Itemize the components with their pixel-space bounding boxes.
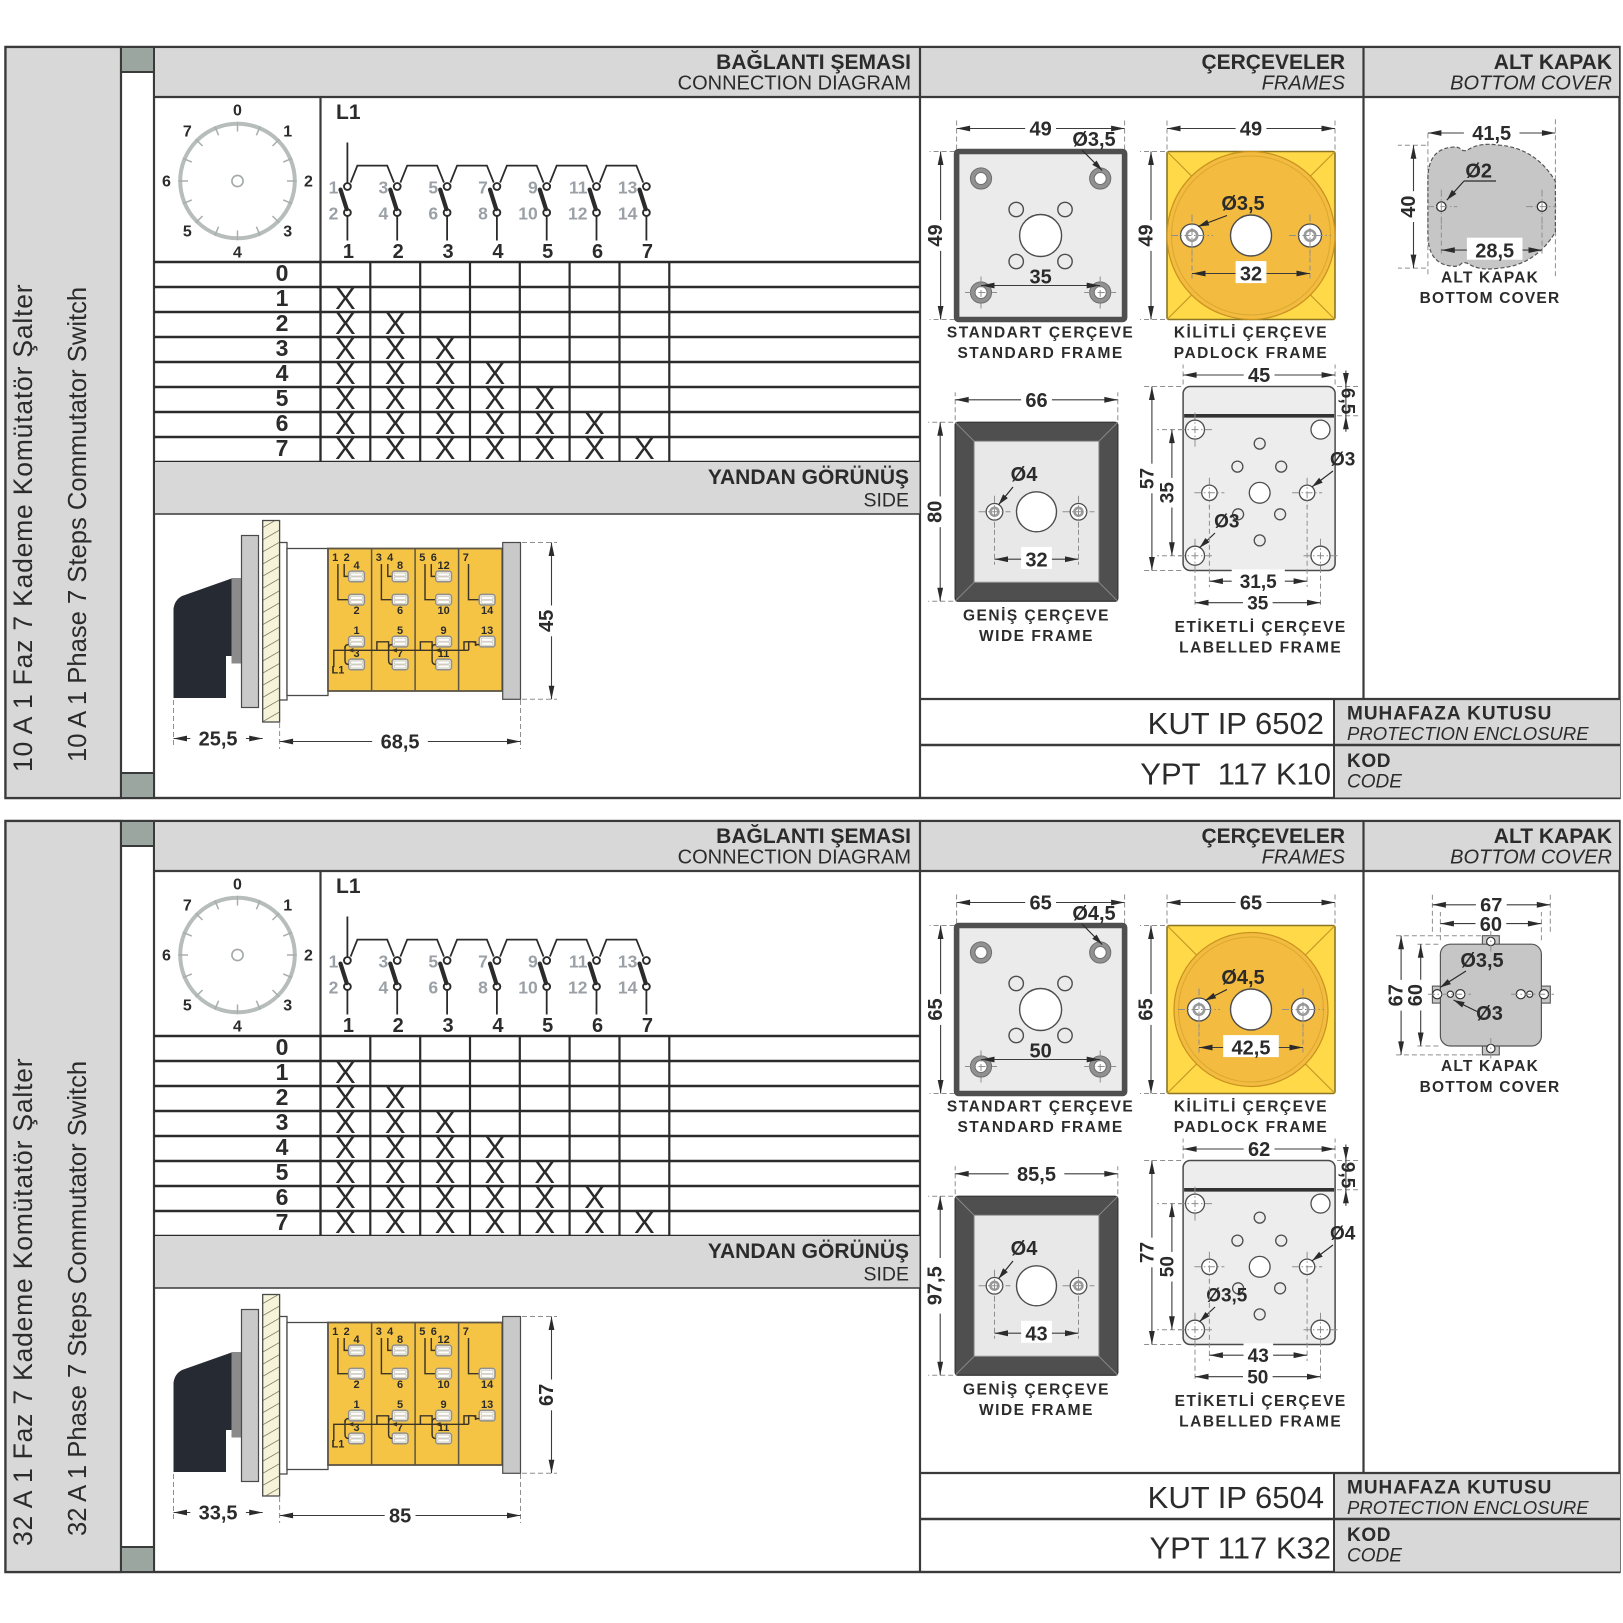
svg-text:0: 0 bbox=[233, 877, 242, 894]
svg-text:Ø3,5: Ø3,5 bbox=[1206, 1286, 1248, 1307]
svg-text:YPT 117 K32: YPT 117 K32 bbox=[1149, 1531, 1331, 1566]
svg-text:ALT KAPAK: ALT KAPAK bbox=[1494, 825, 1612, 848]
svg-text:5: 5 bbox=[183, 998, 192, 1015]
svg-text:4: 4 bbox=[233, 1019, 242, 1036]
svg-text:9: 9 bbox=[528, 952, 538, 972]
svg-text:0: 0 bbox=[233, 103, 242, 120]
svg-text:Ø3: Ø3 bbox=[1330, 450, 1355, 471]
svg-text:14: 14 bbox=[618, 978, 638, 998]
svg-text:28,5: 28,5 bbox=[1475, 240, 1514, 262]
svg-text:KİLİTLİ ÇERÇEVE: KİLİTLİ ÇERÇEVE bbox=[1174, 325, 1328, 342]
svg-text:3: 3 bbox=[378, 178, 388, 198]
svg-text:Ø4: Ø4 bbox=[1011, 464, 1039, 486]
svg-text:LABELLED FRAME: LABELLED FRAME bbox=[1179, 1414, 1342, 1431]
svg-text:PADLOCK FRAME: PADLOCK FRAME bbox=[1174, 1119, 1328, 1136]
svg-text:3: 3 bbox=[283, 998, 292, 1015]
svg-text:5: 5 bbox=[397, 1399, 403, 1411]
svg-text:3: 3 bbox=[376, 1326, 382, 1338]
svg-text:2: 2 bbox=[329, 204, 339, 224]
svg-text:LABELLED FRAME: LABELLED FRAME bbox=[1179, 640, 1342, 657]
svg-text:60: 60 bbox=[1405, 984, 1427, 1006]
svg-text:WIDE FRAME: WIDE FRAME bbox=[979, 628, 1094, 645]
svg-text:4: 4 bbox=[276, 360, 289, 386]
svg-text:FRAMES: FRAMES bbox=[1262, 73, 1346, 95]
svg-text:7: 7 bbox=[276, 435, 289, 461]
svg-text:SIDE: SIDE bbox=[863, 490, 909, 512]
svg-text:GENİŞ ÇERÇEVE: GENİŞ ÇERÇEVE bbox=[963, 1382, 1110, 1399]
svg-text:7: 7 bbox=[276, 1209, 289, 1235]
svg-text:X: X bbox=[634, 1205, 655, 1240]
svg-text:X: X bbox=[584, 1205, 605, 1240]
svg-text:SIDE: SIDE bbox=[863, 1264, 909, 1286]
svg-text:50: 50 bbox=[1247, 1368, 1268, 1389]
svg-text:8: 8 bbox=[397, 1334, 403, 1346]
svg-text:X: X bbox=[584, 431, 605, 466]
svg-text:67: 67 bbox=[536, 1384, 558, 1406]
svg-text:6: 6 bbox=[431, 552, 437, 564]
svg-text:4: 4 bbox=[233, 245, 242, 262]
svg-text:49: 49 bbox=[1240, 119, 1262, 141]
svg-text:10: 10 bbox=[518, 978, 538, 998]
svg-text:L1: L1 bbox=[336, 875, 361, 898]
svg-text:WIDE FRAME: WIDE FRAME bbox=[979, 1402, 1094, 1419]
svg-text:MUHAFAZA KUTUSU: MUHAFAZA KUTUSU bbox=[1347, 1478, 1552, 1499]
svg-text:BAĞLANTI ŞEMASI: BAĞLANTI ŞEMASI bbox=[716, 824, 911, 848]
svg-text:3: 3 bbox=[376, 552, 382, 564]
svg-text:4: 4 bbox=[387, 1326, 394, 1338]
svg-text:6: 6 bbox=[431, 1326, 437, 1338]
svg-text:Ø4: Ø4 bbox=[1011, 1238, 1039, 1260]
svg-text:45: 45 bbox=[1248, 365, 1270, 387]
svg-text:8: 8 bbox=[478, 204, 488, 224]
svg-text:35: 35 bbox=[1157, 482, 1178, 504]
svg-text:7: 7 bbox=[463, 552, 469, 564]
svg-text:2: 2 bbox=[344, 1326, 350, 1338]
svg-text:68,5: 68,5 bbox=[381, 732, 420, 754]
svg-text:CODE: CODE bbox=[1347, 772, 1402, 793]
svg-text:49: 49 bbox=[1029, 119, 1051, 141]
svg-text:40: 40 bbox=[1398, 196, 1420, 218]
svg-text:8: 8 bbox=[478, 978, 488, 998]
svg-text:66: 66 bbox=[1025, 390, 1047, 412]
svg-text:6,5: 6,5 bbox=[1337, 388, 1358, 415]
svg-text:BOTTOM COVER: BOTTOM COVER bbox=[1450, 73, 1612, 95]
svg-text:43: 43 bbox=[1025, 1324, 1047, 1346]
svg-text:2: 2 bbox=[344, 552, 350, 564]
svg-text:BOTTOM COVER: BOTTOM COVER bbox=[1450, 847, 1612, 869]
svg-text:1: 1 bbox=[343, 1015, 354, 1037]
svg-text:6: 6 bbox=[276, 1184, 289, 1210]
svg-text:Ø3,5: Ø3,5 bbox=[1221, 193, 1264, 215]
svg-text:10 A 1 Faz 7 Kademe Komütatör: 10 A 1 Faz 7 Kademe Komütatör Şalter bbox=[8, 284, 38, 772]
svg-text:2: 2 bbox=[329, 978, 339, 998]
svg-text:FRAMES: FRAMES bbox=[1262, 847, 1346, 869]
svg-text:KİLİTLİ ÇERÇEVE: KİLİTLİ ÇERÇEVE bbox=[1174, 1099, 1328, 1116]
svg-text:ETİKETLİ ÇERÇEVE: ETİKETLİ ÇERÇEVE bbox=[1175, 1393, 1347, 1410]
svg-text:Ø3: Ø3 bbox=[1476, 1003, 1503, 1025]
svg-text:GENİŞ ÇERÇEVE: GENİŞ ÇERÇEVE bbox=[963, 608, 1110, 625]
svg-text:5: 5 bbox=[183, 224, 192, 241]
svg-text:4: 4 bbox=[378, 978, 388, 998]
svg-text:50: 50 bbox=[1157, 1256, 1178, 1277]
svg-text:80: 80 bbox=[925, 501, 947, 523]
svg-text:KUT IP 6504: KUT IP 6504 bbox=[1148, 1480, 1324, 1515]
svg-text:PADLOCK FRAME: PADLOCK FRAME bbox=[1174, 345, 1328, 362]
svg-text:0: 0 bbox=[276, 1034, 289, 1060]
svg-text:35: 35 bbox=[1029, 267, 1051, 289]
svg-text:2: 2 bbox=[353, 1379, 359, 1391]
svg-text:8: 8 bbox=[397, 560, 403, 572]
svg-text:3: 3 bbox=[378, 952, 388, 972]
svg-text:1: 1 bbox=[332, 552, 338, 564]
svg-text:2: 2 bbox=[276, 1084, 289, 1110]
svg-text:32 A 1 Faz 7 Kademe Komütatör: 32 A 1 Faz 7 Kademe Komütatör Şalter bbox=[8, 1058, 38, 1546]
svg-text:45: 45 bbox=[536, 610, 558, 632]
svg-text:14: 14 bbox=[481, 1379, 494, 1391]
svg-text:STANDARD FRAME: STANDARD FRAME bbox=[957, 1119, 1123, 1136]
svg-text:7: 7 bbox=[642, 1015, 653, 1037]
svg-text:14: 14 bbox=[618, 204, 638, 224]
svg-text:STANDART ÇERÇEVE: STANDART ÇERÇEVE bbox=[947, 1099, 1134, 1116]
svg-text:9: 9 bbox=[528, 178, 538, 198]
svg-text:3: 3 bbox=[443, 241, 454, 263]
svg-text:X: X bbox=[485, 431, 506, 466]
svg-text:1: 1 bbox=[283, 897, 292, 914]
svg-text:35: 35 bbox=[1247, 594, 1269, 615]
svg-text:32: 32 bbox=[1240, 264, 1262, 286]
svg-text:57: 57 bbox=[1137, 468, 1158, 489]
svg-text:6: 6 bbox=[276, 410, 289, 436]
svg-text:32 A 1 Phase 7 Steps Commutato: 32 A 1 Phase 7 Steps Commutator Switch bbox=[64, 1061, 92, 1536]
svg-text:11: 11 bbox=[569, 952, 588, 972]
svg-text:85: 85 bbox=[389, 1506, 411, 1528]
svg-text:13: 13 bbox=[481, 625, 493, 637]
svg-text:62: 62 bbox=[1248, 1139, 1270, 1161]
svg-text:4: 4 bbox=[492, 241, 504, 263]
svg-text:MUHAFAZA KUTUSU: MUHAFAZA KUTUSU bbox=[1347, 704, 1552, 725]
svg-text:7: 7 bbox=[183, 123, 192, 140]
svg-text:33,5: 33,5 bbox=[199, 1503, 238, 1525]
svg-text:4: 4 bbox=[276, 1134, 289, 1160]
svg-text:1: 1 bbox=[276, 1059, 289, 1085]
svg-text:1: 1 bbox=[353, 1399, 359, 1411]
svg-text:31,5: 31,5 bbox=[1240, 572, 1277, 593]
svg-text:L1: L1 bbox=[336, 101, 361, 124]
svg-text:9,5: 9,5 bbox=[1336, 1162, 1357, 1189]
svg-text:ALT KAPAK: ALT KAPAK bbox=[1441, 1058, 1539, 1075]
svg-text:3: 3 bbox=[276, 1109, 289, 1135]
svg-text:X: X bbox=[485, 1205, 506, 1240]
svg-text:1: 1 bbox=[329, 178, 339, 198]
svg-text:YANDAN GÖRÜNÜŞ: YANDAN GÖRÜNÜŞ bbox=[708, 466, 909, 489]
svg-text:12: 12 bbox=[437, 1334, 449, 1346]
svg-text:5: 5 bbox=[276, 1159, 289, 1185]
svg-text:KOD: KOD bbox=[1347, 1525, 1391, 1546]
svg-text:6: 6 bbox=[428, 204, 438, 224]
svg-text:12: 12 bbox=[568, 978, 588, 998]
svg-text:1: 1 bbox=[332, 1326, 338, 1338]
svg-text:Ø3: Ø3 bbox=[1214, 512, 1239, 533]
svg-text:L1: L1 bbox=[332, 1439, 345, 1451]
svg-text:7: 7 bbox=[478, 952, 488, 972]
svg-text:12: 12 bbox=[437, 560, 449, 572]
svg-text:CONNECTION DIAGRAM: CONNECTION DIAGRAM bbox=[678, 73, 911, 95]
svg-text:97,5: 97,5 bbox=[925, 1266, 947, 1305]
svg-text:42,5: 42,5 bbox=[1232, 1038, 1271, 1060]
svg-text:Ø4: Ø4 bbox=[1330, 1224, 1356, 1245]
svg-text:2: 2 bbox=[393, 1015, 404, 1037]
svg-text:Ø4,5: Ø4,5 bbox=[1221, 967, 1264, 989]
svg-text:85,5: 85,5 bbox=[1017, 1164, 1056, 1186]
svg-text:ALT KAPAK: ALT KAPAK bbox=[1494, 51, 1612, 74]
svg-text:X: X bbox=[385, 431, 406, 466]
svg-text:49: 49 bbox=[925, 224, 947, 246]
svg-text:1: 1 bbox=[276, 285, 289, 311]
svg-text:5: 5 bbox=[428, 178, 438, 198]
svg-text:43: 43 bbox=[1248, 1346, 1269, 1367]
svg-text:PROTECTION ENCLOSURE: PROTECTION ENCLOSURE bbox=[1347, 723, 1589, 744]
svg-text:9: 9 bbox=[441, 625, 447, 637]
svg-text:1: 1 bbox=[329, 952, 339, 972]
svg-text:6: 6 bbox=[428, 978, 438, 998]
svg-text:YPT 117 K10: YPT 117 K10 bbox=[1140, 757, 1331, 792]
svg-text:41,5: 41,5 bbox=[1472, 123, 1511, 145]
svg-text:X: X bbox=[534, 1205, 555, 1240]
svg-text:65: 65 bbox=[1240, 893, 1262, 915]
svg-text:32: 32 bbox=[1025, 550, 1047, 572]
svg-text:4: 4 bbox=[378, 204, 388, 224]
svg-text:6: 6 bbox=[397, 1379, 403, 1391]
svg-text:3: 3 bbox=[443, 1015, 454, 1037]
svg-text:6: 6 bbox=[162, 174, 171, 191]
svg-text:KOD: KOD bbox=[1347, 751, 1391, 772]
svg-text:65: 65 bbox=[1136, 998, 1158, 1020]
svg-text:CODE: CODE bbox=[1347, 1546, 1402, 1567]
svg-text:PROTECTION ENCLOSURE: PROTECTION ENCLOSURE bbox=[1347, 1497, 1589, 1518]
svg-text:13: 13 bbox=[618, 178, 638, 198]
svg-text:0: 0 bbox=[276, 260, 289, 286]
svg-text:10: 10 bbox=[437, 1379, 449, 1391]
svg-text:5: 5 bbox=[428, 952, 438, 972]
svg-text:49: 49 bbox=[1136, 224, 1158, 246]
svg-text:X: X bbox=[435, 1205, 456, 1240]
svg-text:Ø3,5: Ø3,5 bbox=[1460, 950, 1503, 972]
svg-text:BAĞLANTI ŞEMASI: BAĞLANTI ŞEMASI bbox=[716, 50, 911, 74]
svg-text:L1: L1 bbox=[332, 665, 345, 677]
svg-text:X: X bbox=[534, 431, 555, 466]
svg-text:6: 6 bbox=[592, 1015, 603, 1037]
svg-text:5: 5 bbox=[542, 241, 553, 263]
svg-text:STANDARD FRAME: STANDARD FRAME bbox=[957, 345, 1123, 362]
svg-text:50: 50 bbox=[1029, 1041, 1051, 1063]
svg-text:65: 65 bbox=[1029, 893, 1051, 915]
svg-text:CONNECTION DIAGRAM: CONNECTION DIAGRAM bbox=[678, 847, 911, 869]
svg-text:X: X bbox=[335, 1205, 356, 1240]
svg-text:ÇERÇEVELER: ÇERÇEVELER bbox=[1201, 51, 1345, 74]
svg-text:5: 5 bbox=[397, 625, 403, 637]
svg-text:7: 7 bbox=[478, 178, 488, 198]
svg-text:1: 1 bbox=[283, 123, 292, 140]
svg-text:X: X bbox=[634, 431, 655, 466]
svg-text:X: X bbox=[435, 431, 456, 466]
svg-text:BOTTOM COVER: BOTTOM COVER bbox=[1420, 290, 1561, 307]
svg-text:9: 9 bbox=[441, 1399, 447, 1411]
svg-text:14: 14 bbox=[481, 605, 494, 617]
svg-text:KUT IP 6502: KUT IP 6502 bbox=[1148, 706, 1324, 741]
svg-text:ÇERÇEVELER: ÇERÇEVELER bbox=[1201, 825, 1345, 848]
svg-text:YANDAN GÖRÜNÜŞ: YANDAN GÖRÜNÜŞ bbox=[708, 1240, 909, 1263]
svg-text:10: 10 bbox=[518, 204, 538, 224]
svg-text:7: 7 bbox=[642, 241, 653, 263]
svg-text:10 A 1 Phase 7 Steps Commutato: 10 A 1 Phase 7 Steps Commutator Switch bbox=[64, 287, 92, 762]
svg-text:6: 6 bbox=[592, 241, 603, 263]
svg-text:5: 5 bbox=[542, 1015, 553, 1037]
svg-text:5: 5 bbox=[419, 552, 425, 564]
svg-text:BOTTOM COVER: BOTTOM COVER bbox=[1420, 1079, 1561, 1096]
svg-text:4: 4 bbox=[353, 560, 360, 572]
svg-text:6: 6 bbox=[162, 948, 171, 965]
svg-text:ETİKETLİ ÇERÇEVE: ETİKETLİ ÇERÇEVE bbox=[1175, 619, 1347, 636]
svg-text:4: 4 bbox=[387, 552, 394, 564]
svg-text:3: 3 bbox=[276, 335, 289, 361]
svg-text:65: 65 bbox=[925, 998, 947, 1020]
svg-text:Ø2: Ø2 bbox=[1465, 161, 1492, 183]
svg-text:X: X bbox=[385, 1205, 406, 1240]
svg-text:Ø4,5: Ø4,5 bbox=[1072, 903, 1115, 925]
svg-text:13: 13 bbox=[618, 952, 638, 972]
svg-text:5: 5 bbox=[419, 1326, 425, 1338]
svg-text:1: 1 bbox=[353, 625, 359, 637]
svg-text:STANDART ÇERÇEVE: STANDART ÇERÇEVE bbox=[947, 325, 1134, 342]
svg-text:7: 7 bbox=[183, 897, 192, 914]
svg-text:25,5: 25,5 bbox=[199, 729, 238, 751]
svg-text:ALT KAPAK: ALT KAPAK bbox=[1441, 270, 1539, 287]
svg-text:4: 4 bbox=[353, 1334, 360, 1346]
svg-text:2: 2 bbox=[276, 310, 289, 336]
svg-text:11: 11 bbox=[569, 178, 588, 198]
svg-text:4: 4 bbox=[492, 1015, 504, 1037]
svg-text:2: 2 bbox=[393, 241, 404, 263]
svg-text:13: 13 bbox=[481, 1399, 493, 1411]
svg-text:77: 77 bbox=[1137, 1242, 1158, 1263]
svg-text:2: 2 bbox=[304, 948, 313, 965]
svg-text:6: 6 bbox=[397, 605, 403, 617]
svg-text:X: X bbox=[335, 431, 356, 466]
svg-text:5: 5 bbox=[276, 385, 289, 411]
svg-text:1: 1 bbox=[343, 241, 354, 263]
svg-text:7: 7 bbox=[463, 1326, 469, 1338]
svg-text:3: 3 bbox=[283, 224, 292, 241]
svg-text:10: 10 bbox=[437, 605, 449, 617]
svg-text:2: 2 bbox=[353, 605, 359, 617]
svg-text:12: 12 bbox=[568, 204, 588, 224]
svg-text:2: 2 bbox=[304, 174, 313, 191]
svg-text:Ø3,5: Ø3,5 bbox=[1072, 129, 1115, 151]
